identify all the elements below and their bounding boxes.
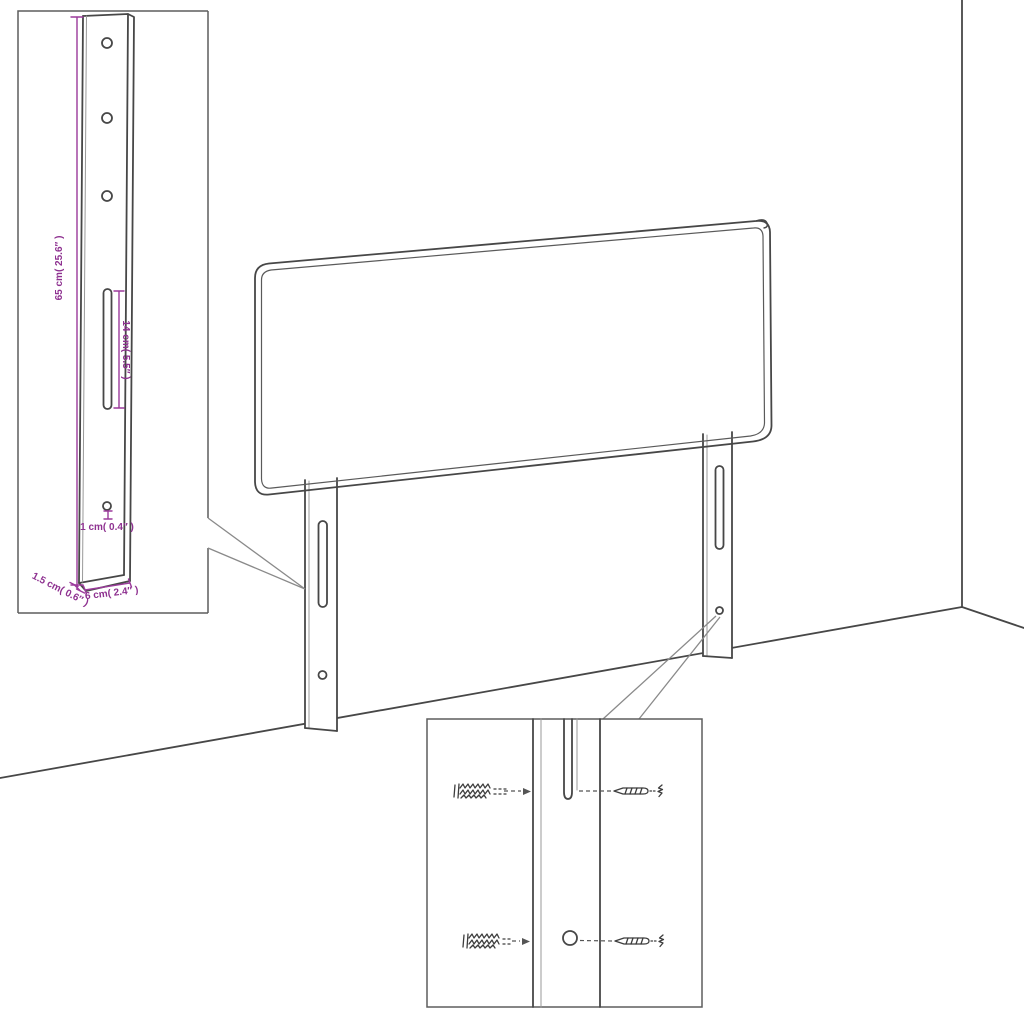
arrow-icon xyxy=(522,938,530,945)
screw-leader-dash xyxy=(580,941,613,942)
left-leg-body xyxy=(305,476,337,731)
panel-outer-edge xyxy=(255,221,772,495)
floor-line-right xyxy=(962,607,1024,628)
magnified-hole xyxy=(563,931,577,945)
callout-lines-left xyxy=(208,518,305,589)
hole-dimension-label: 1 cm( 0.4″ ) xyxy=(80,522,134,533)
floor-line-left xyxy=(0,607,962,778)
hardware-detail-inset xyxy=(427,719,702,1007)
hardware-row-slot xyxy=(454,784,663,798)
magnified-leg xyxy=(533,719,600,1007)
headboard-panel xyxy=(255,220,772,495)
headboard-dimension-diagram: 65 cm( 25.6″ ) 14 cm( 5.5″ ) 1 cm( 0.4″ … xyxy=(0,0,1024,1024)
height-dimension-label: 65 cm( 25.6″ ) xyxy=(54,236,65,301)
screw-icon xyxy=(615,935,664,947)
screw-icon xyxy=(614,785,663,797)
diagram-svg: 65 cm( 25.6″ ) 14 cm( 5.5″ ) 1 cm( 0.4″ … xyxy=(0,0,1024,1024)
slot-dimension-label: 14 cm( 5.5″ ) xyxy=(120,320,131,379)
headboard-left-leg xyxy=(305,476,337,731)
wall-anchor-icon xyxy=(454,784,506,798)
bracket-detail-inset: 65 cm( 25.6″ ) 14 cm( 5.5″ ) 1 cm( 0.4″ … xyxy=(18,11,208,613)
magnified-slot xyxy=(564,719,572,799)
wall-anchor-icon xyxy=(463,934,513,948)
arrow-icon xyxy=(523,788,531,795)
